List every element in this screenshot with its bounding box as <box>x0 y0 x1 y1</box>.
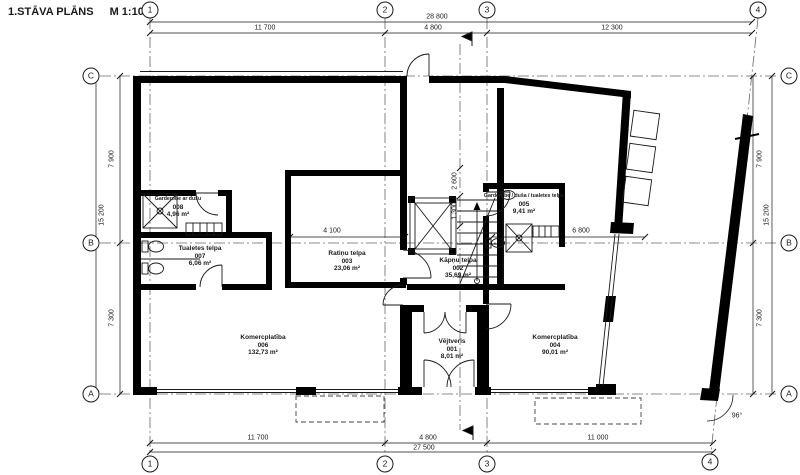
elevator <box>410 198 456 254</box>
room-area: 4,96 m² <box>155 211 201 219</box>
dim-bottom-seg-3: 11 000 <box>588 435 609 442</box>
room-label-ratinu-telpa: Ratiņu telpa 003 23,06 m² <box>328 250 365 273</box>
room-label-vejtveris: Vējtveris 001 8,01 m² <box>438 338 465 361</box>
room-number: 008 <box>155 204 201 212</box>
room-name: Tualetes telpa <box>179 245 222 253</box>
room-area: 9,41 m² <box>484 208 564 216</box>
dim-left-upper: 7 900 <box>109 150 116 168</box>
dim-left-lower: 7 300 <box>109 309 116 327</box>
grid-bubble-C-right: C <box>781 68 798 85</box>
room-name: Ratiņu telpa <box>328 250 365 258</box>
grid-bubble-4-bottom: 4 <box>702 454 719 471</box>
floor-plan-canvas: 1.STĀVA PLĀNSM 1:100 1 2 3 4 1 2 3 4 C B… <box>0 0 800 475</box>
room-area: 8,01 m² <box>438 353 465 361</box>
floor-plan-drawing <box>0 0 800 475</box>
dim-top-seg-1: 11 700 <box>255 25 276 32</box>
stair-direction-arrow <box>474 202 481 210</box>
canopy-outlines <box>296 396 641 424</box>
dim-bottom-seg-2: 4 800 <box>419 435 437 442</box>
room-number: 004 <box>532 342 577 350</box>
dim-right-upper: 7 900 <box>757 150 764 168</box>
room-area: 35,69 m² <box>439 272 476 280</box>
dim-top-seg-3: 12 300 <box>601 25 622 32</box>
dim-interior-stair-upper: 2 600 <box>452 172 459 190</box>
grid-bubble-2-top: 2 <box>377 2 394 19</box>
room-number: 002 <box>439 265 476 273</box>
grid-bubble-4-top: 4 <box>750 2 767 19</box>
dim-interior-right: 6 800 <box>572 228 590 235</box>
room-area: 6,06 m² <box>179 260 222 268</box>
grid-bubble-A-right: A <box>781 386 798 403</box>
room-label-tualetes-telpa: Tualetes telpa 007 6,06 m² <box>179 245 222 268</box>
dim-interior-stair-lower: 1 300 <box>452 202 459 220</box>
grid-bubble-A-left: A <box>83 386 100 403</box>
angle-label: 96° <box>732 413 743 420</box>
room-number: 005 <box>484 201 564 209</box>
grid-bubble-B-left: B <box>83 235 100 252</box>
dim-left-total: 15 200 <box>99 204 106 225</box>
room-name: Komercplatība <box>240 334 285 342</box>
toilet-icon <box>142 263 148 274</box>
room-number: 007 <box>179 253 222 261</box>
room-name: Komercplatība <box>532 334 577 342</box>
grid-bubble-3-top: 3 <box>479 2 496 19</box>
dim-right-lower: 7 300 <box>757 309 764 327</box>
grid-bubble-3-bottom: 3 <box>479 456 496 473</box>
entrance-markers <box>462 32 473 440</box>
room-name: Garderobe / duša / tualetes telpa <box>484 193 564 201</box>
room-name: Garderobe ar dušu <box>155 196 201 204</box>
room-number: 001 <box>438 346 465 354</box>
plan-title: 1.STĀVA PLĀNS <box>8 6 94 18</box>
boundary-wall <box>700 114 759 401</box>
dim-interior-ratinu: 4 100 <box>323 228 341 235</box>
dim-top-seg-2: 4 800 <box>424 25 442 32</box>
room-name: Vējtveris <box>438 338 465 346</box>
grid-bubble-2-bottom: 2 <box>377 456 394 473</box>
room-name: Kāpņu telpa <box>439 257 476 265</box>
room-label-kapnu-telpa: Kāpņu telpa 002 35,69 m² <box>439 257 476 280</box>
room-area: 132,73 m² <box>240 349 285 357</box>
dim-top-total: 28 800 <box>426 14 447 21</box>
room-number: 006 <box>240 342 285 350</box>
room-number: 003 <box>328 258 365 266</box>
grid-bubble-B-right: B <box>781 235 798 252</box>
room-label-komercplatiba-004: Komercplatība 004 90,01 m² <box>532 334 577 357</box>
dim-right-total: 15 200 <box>764 204 771 225</box>
grid-bubble-C-left: C <box>83 68 100 85</box>
room-area: 23,06 m² <box>328 265 365 273</box>
radiator-icon <box>533 226 559 237</box>
room-label-komercplatiba-006: Komercplatība 006 132,73 m² <box>240 334 285 357</box>
room-area: 90,01 m² <box>532 349 577 357</box>
dim-bottom-seg-1: 11 700 <box>248 435 269 442</box>
page-title: 1.STĀVA PLĀNSM 1:100 <box>8 6 150 18</box>
room-label-garderobe-005: Garderobe / duša / tualetes telpa 005 9,… <box>484 193 564 216</box>
dim-bottom-total: 27 500 <box>413 445 434 452</box>
grid-bubble-1-bottom: 1 <box>142 456 159 473</box>
room-label-garderobe-008: Garderobe ar dušu 008 4,96 m² <box>155 196 201 219</box>
grid-bubble-1-top: 1 <box>142 2 159 19</box>
